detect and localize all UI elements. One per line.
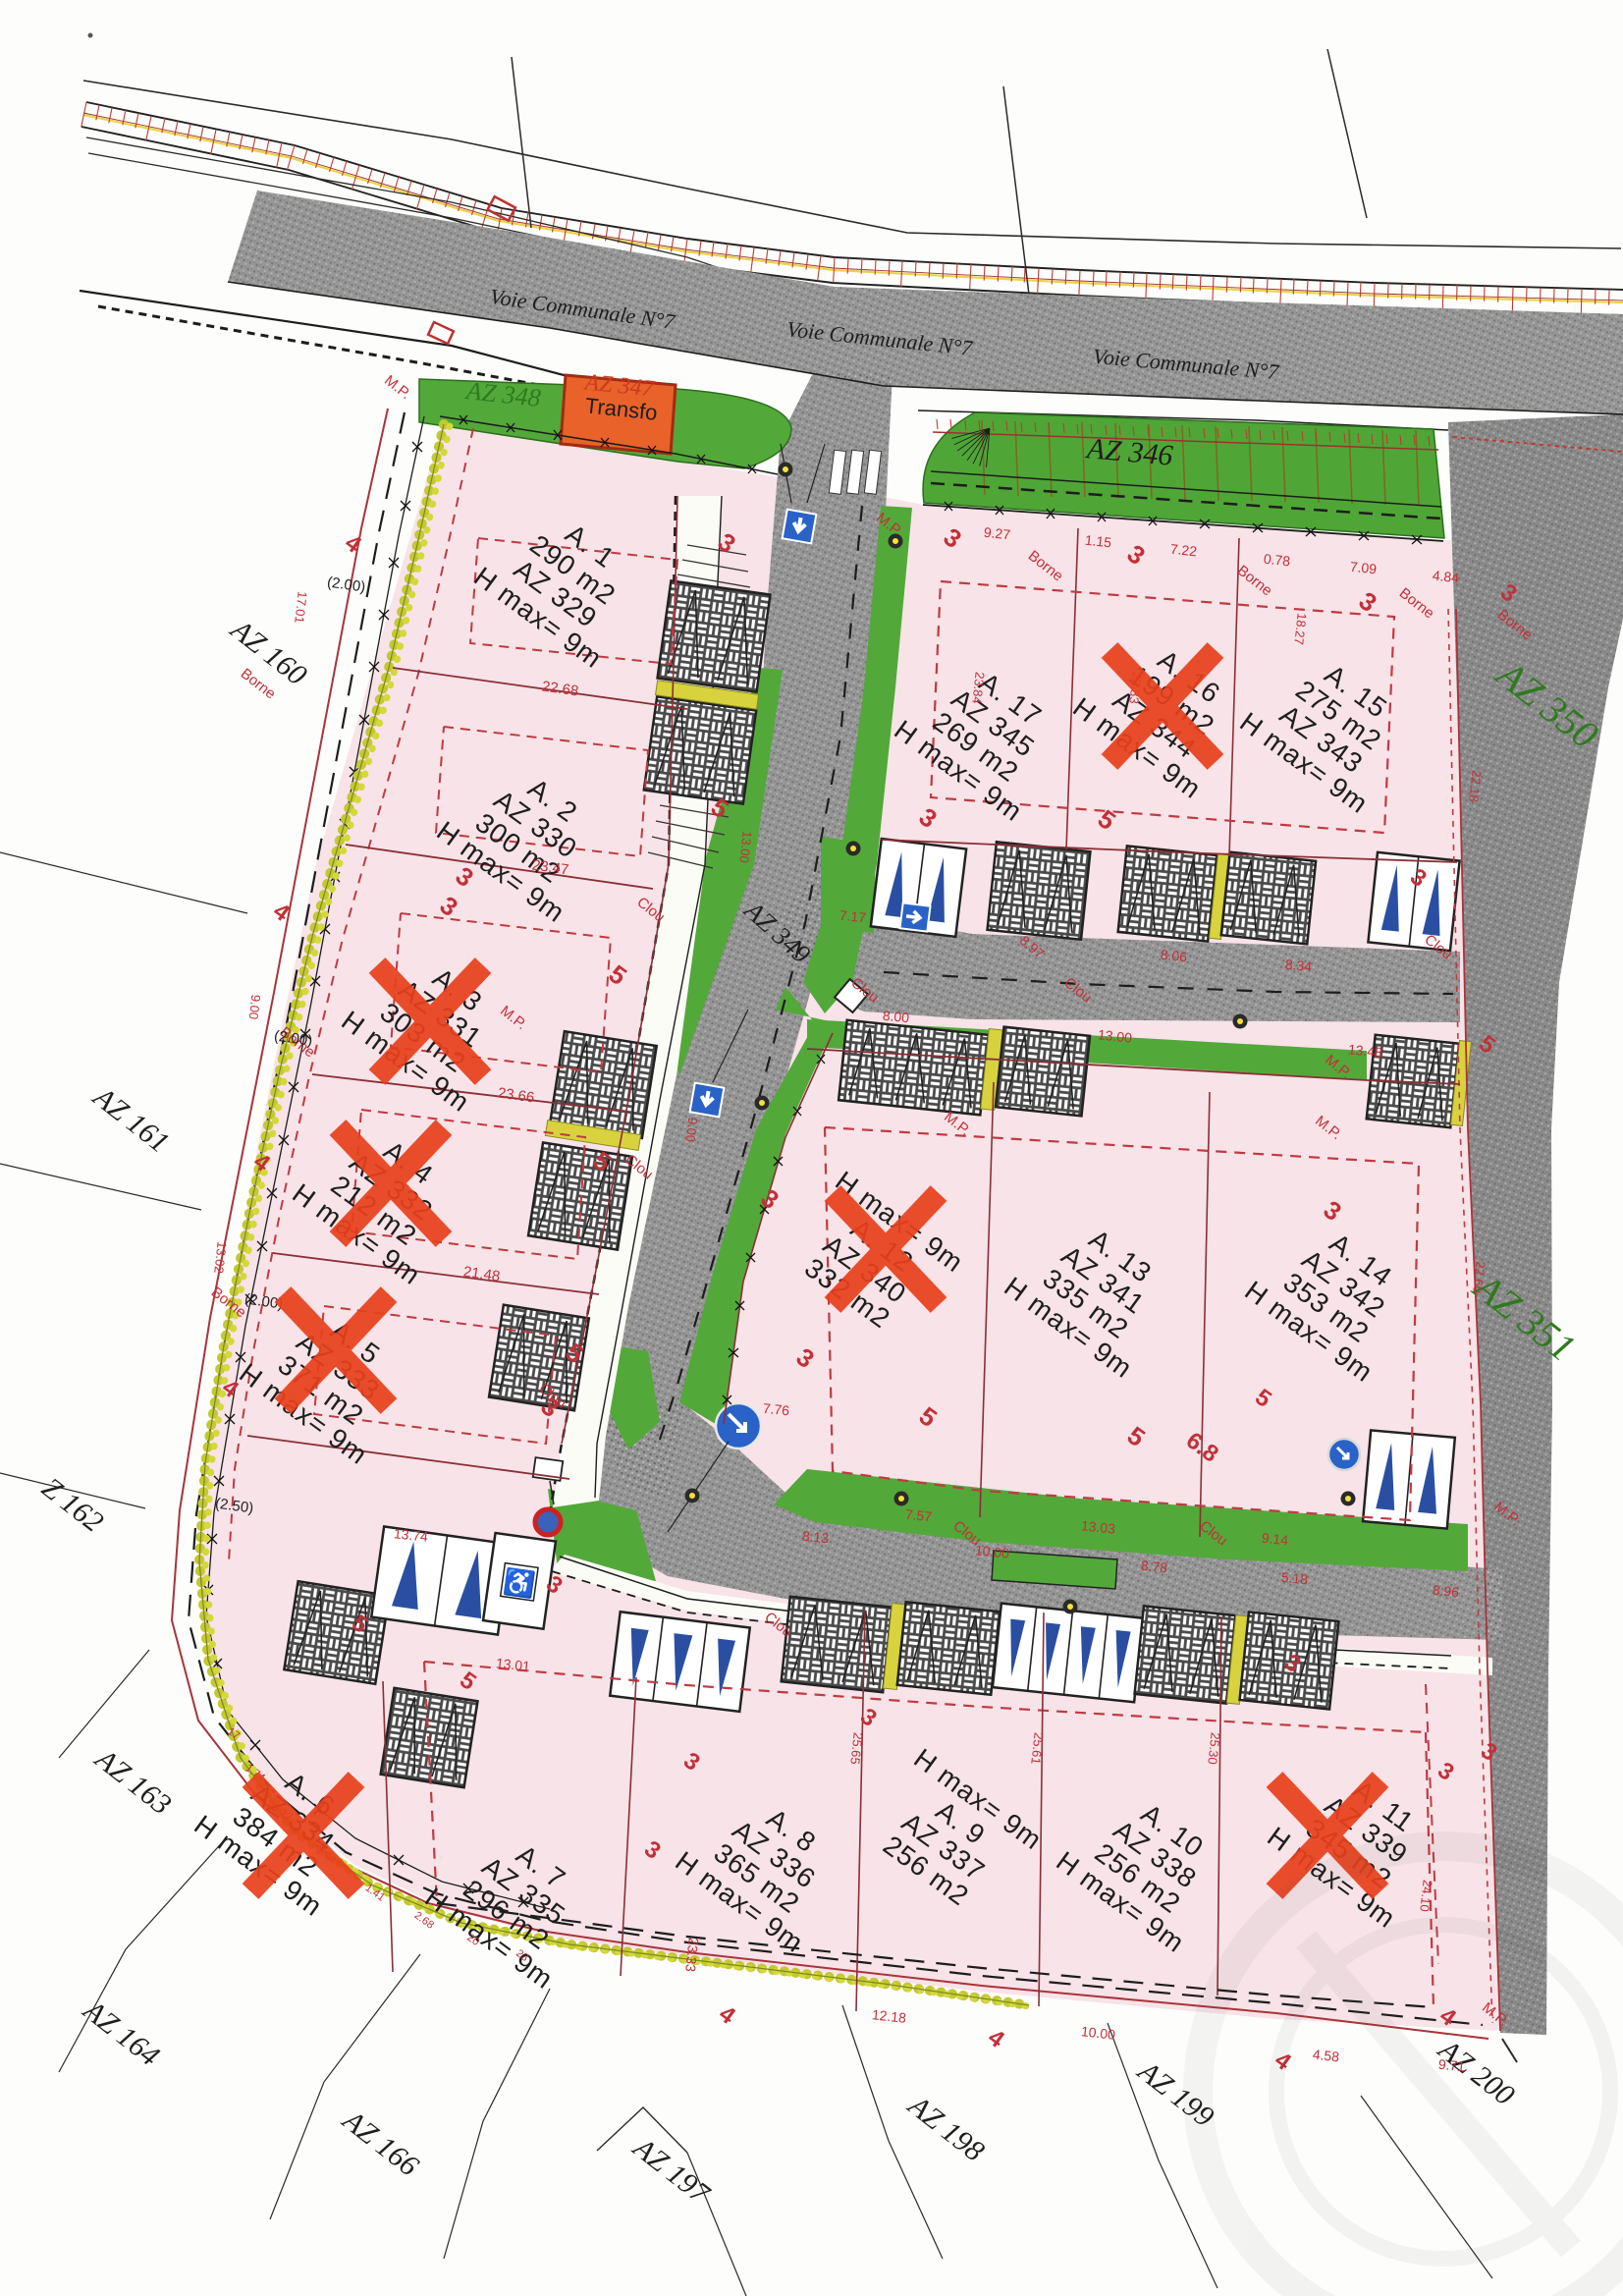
svg-text:8.78: 8.78: [1140, 1558, 1168, 1576]
svg-text:9.71: 9.71: [1437, 2056, 1466, 2075]
svg-text:8.34: 8.34: [1284, 957, 1313, 975]
svg-text:8.96: 8.96: [1432, 1582, 1460, 1601]
svg-text:9.00: 9.00: [683, 1117, 701, 1143]
svg-text:7.09: 7.09: [1349, 559, 1378, 577]
svg-text:5.18: 5.18: [1280, 1569, 1309, 1588]
svg-text:9.14: 9.14: [1261, 1530, 1289, 1549]
svg-text:8.13: 8.13: [801, 1528, 830, 1547]
svg-text:0.78: 0.78: [1263, 551, 1291, 570]
svg-text:7.22: 7.22: [1169, 541, 1198, 560]
svg-text:9.00: 9.00: [246, 994, 264, 1020]
svg-text:9.27: 9.27: [983, 524, 1011, 543]
svg-text:7.17: 7.17: [839, 907, 867, 926]
svg-text:8.00: 8.00: [882, 1008, 910, 1026]
svg-text:8.06: 8.06: [1160, 947, 1188, 965]
svg-text:♿: ♿: [502, 1566, 537, 1600]
svg-text:4.84: 4.84: [1432, 568, 1460, 586]
svg-text:4.58: 4.58: [1312, 2047, 1340, 2065]
svg-text:7.76: 7.76: [762, 1400, 790, 1419]
svg-text:7.57: 7.57: [904, 1506, 933, 1525]
svg-text:1.15: 1.15: [1084, 532, 1112, 551]
